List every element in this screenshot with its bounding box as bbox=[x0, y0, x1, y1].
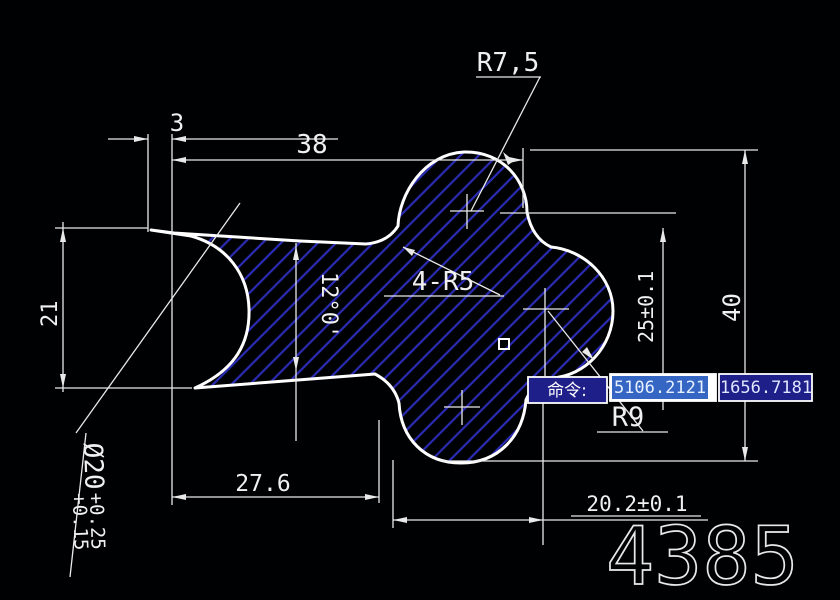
dim-40-label: 40 bbox=[718, 293, 746, 322]
dim-21-label: 21 bbox=[38, 301, 63, 328]
dim-bore-label: Ø20 +0.25 +0.15 bbox=[66, 442, 111, 551]
svg-text:+0.15: +0.15 bbox=[68, 493, 92, 551]
dim-25-label: 25±0.1 bbox=[634, 271, 658, 343]
command-prompt-label: 命令: bbox=[547, 381, 587, 401]
svg-text:Ø20: Ø20 bbox=[77, 442, 109, 490]
part-outline bbox=[151, 152, 613, 463]
coord-x-value[interactable]: 5106.2121 bbox=[614, 378, 706, 398]
dim-angle-label: 12°0' bbox=[316, 272, 341, 338]
drawing-canvas[interactable]: 3 38 R7,5 21 12°0' 4-R5 25±0.1 40 R9 27.… bbox=[0, 0, 840, 600]
coord-y-value[interactable]: 1656.7181 bbox=[720, 378, 812, 398]
cad-viewport[interactable]: 3 38 R7,5 21 12°0' 4-R5 25±0.1 40 R9 27.… bbox=[0, 0, 840, 600]
dim-radius-right-label: R9 bbox=[612, 402, 645, 433]
dim-fillet-label: 4-R5 bbox=[412, 267, 475, 297]
part-number: 4385 bbox=[606, 510, 799, 600]
dim-276-label: 27.6 bbox=[235, 471, 290, 497]
dim-3-label: 3 bbox=[170, 109, 184, 137]
dim-38-label: 38 bbox=[296, 130, 327, 160]
command-bar: 命令: 5106.2121 1656.7181 bbox=[528, 374, 812, 403]
dim-radius-top-label: R7,5 bbox=[477, 48, 540, 78]
